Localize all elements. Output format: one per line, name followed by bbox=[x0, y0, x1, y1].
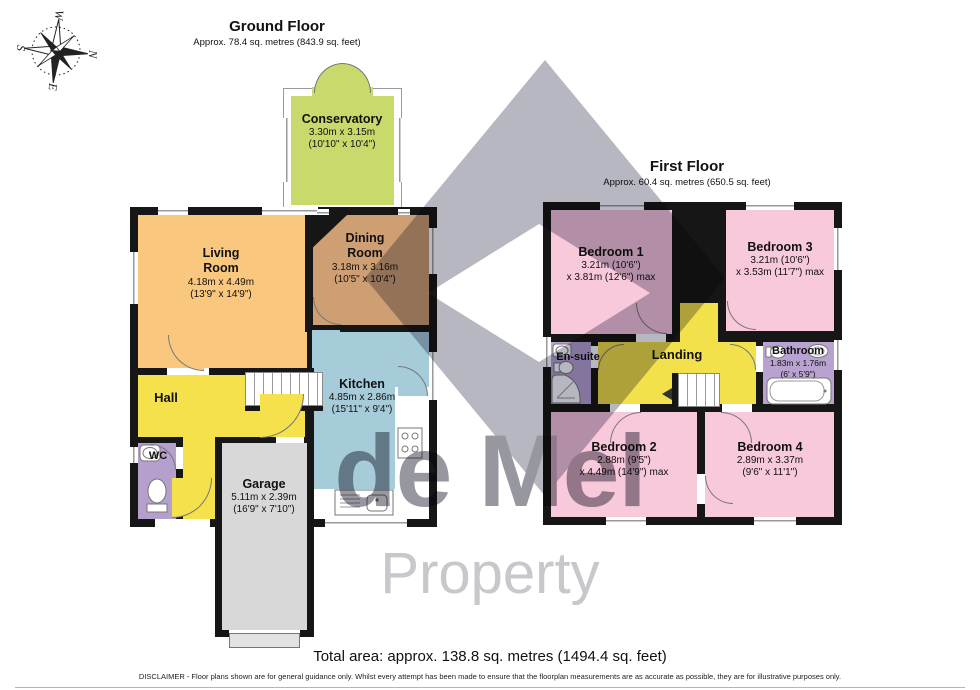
garage-dims-ft: (16'9" x 7'10") bbox=[204, 504, 324, 516]
bed4-inner-door-opening bbox=[697, 474, 705, 504]
window-kitchen-right bbox=[429, 352, 437, 400]
label-bedroom4: Bedroom 4 2.89m x 3.37m (9'6" x 11'1") bbox=[710, 440, 830, 480]
bedroom4-dims1: 2.89m x 3.37m bbox=[710, 455, 830, 467]
bedroom1-door-opening bbox=[636, 334, 666, 342]
label-dining: Dining Room 3.18m x 3.16m (10'5" x 10'4"… bbox=[305, 231, 425, 286]
bedroom2-dims2: x 4.49m (14'9") max bbox=[564, 467, 684, 479]
compass-w: W bbox=[52, 10, 67, 22]
kitchen-dims-ft: (15'11" x 9'4") bbox=[302, 404, 422, 416]
conservatory-dims-ft: (10'10" x 10'4") bbox=[282, 139, 402, 151]
bedroom4-door-opening bbox=[722, 404, 752, 412]
dining-name: Dining Room bbox=[305, 231, 425, 262]
window-dining-top-1 bbox=[317, 209, 329, 215]
watermark-property-text: Property bbox=[330, 545, 650, 603]
garage-door bbox=[229, 633, 300, 648]
disclaimer-text: DISCLAIMER - Floor plans shown are for g… bbox=[0, 672, 980, 681]
landing-name: Landing bbox=[617, 347, 737, 363]
stairs-arrow bbox=[662, 388, 672, 400]
label-ensuite: En-suite bbox=[546, 351, 610, 364]
conservatory-dims-m: 3.30m x 3.15m bbox=[282, 127, 402, 139]
wc-toilet-icon bbox=[145, 478, 169, 516]
wc-name: WC bbox=[140, 450, 176, 463]
ground-floor-subtitle: Approx. 78.4 sq. metres (843.9 sq. feet) bbox=[177, 37, 377, 48]
garage-dims-m: 5.11m x 2.39m bbox=[204, 492, 324, 504]
compass-e: E bbox=[46, 82, 61, 92]
floorplan-canvas: N E S W Ground Floor Approx. 78.4 sq. me… bbox=[0, 0, 980, 690]
window-bed4-bottom bbox=[754, 517, 796, 525]
label-bedroom3: Bedroom 3 3.21m (10'6") x 3.53m (11'7") … bbox=[718, 240, 842, 280]
total-area-text: Total area: approx. 138.8 sq. metres (14… bbox=[0, 648, 980, 665]
dining-dims-ft: (10'5" x 10'4") bbox=[305, 274, 425, 286]
window-living-top-1 bbox=[158, 207, 188, 215]
conservatory-double-door-left bbox=[314, 63, 343, 93]
bathroom-dims1: 1.83m x 1.76m bbox=[748, 358, 848, 368]
bathroom-dims2: (6' x 5'9") bbox=[748, 369, 848, 379]
label-bedroom1: Bedroom 1 3.21m (10'6") x 3.81m (12'6") … bbox=[551, 245, 671, 285]
bedroom1-dims2: x 3.81m (12'6") max bbox=[551, 272, 671, 284]
living-dims-ft: (13'9" x 14'9") bbox=[161, 289, 281, 301]
window-dining-right bbox=[429, 228, 437, 274]
kitchen-dims-m: 4.85m x 2.86m bbox=[302, 392, 422, 404]
ensuite-shower-icon bbox=[551, 374, 583, 404]
ground-floor-title-text: Ground Floor bbox=[177, 18, 377, 35]
window-living-top-2 bbox=[262, 207, 318, 215]
bedroom1-name: Bedroom 1 bbox=[551, 245, 671, 260]
window-living-left bbox=[130, 252, 138, 304]
window-dining-top-2 bbox=[398, 209, 410, 215]
label-kitchen: Kitchen 4.85m x 2.86m (15'11" x 9'4") bbox=[302, 377, 422, 417]
compass-n: N bbox=[85, 49, 97, 60]
hall-name: Hall bbox=[136, 390, 196, 406]
label-hall: Hall bbox=[136, 390, 196, 406]
bedroom3-dims2: x 3.53m (11'7") max bbox=[718, 267, 842, 279]
kitchen-name: Kitchen bbox=[302, 377, 422, 392]
first-floor-title: First Floor Approx. 60.4 sq. metres (650… bbox=[587, 158, 787, 188]
bedroom2-door-opening bbox=[610, 404, 640, 412]
wall-dining-kitchen bbox=[340, 325, 437, 332]
window-wc-left bbox=[130, 447, 138, 463]
window-kitchen-bottom bbox=[325, 519, 407, 527]
ground-floor-title: Ground Floor Approx. 78.4 sq. metres (84… bbox=[177, 18, 377, 48]
living-dims-m: 4.18m x 4.49m bbox=[161, 277, 281, 289]
kitchen-sink-icon bbox=[334, 489, 394, 516]
compass-s: S bbox=[15, 44, 28, 51]
wc-door-opening bbox=[176, 447, 183, 469]
label-bedroom2: Bedroom 2 2.88m (9'5") x 4.49m (14'9") m… bbox=[564, 440, 684, 480]
dining-dims-m: 3.18m x 3.16m bbox=[305, 262, 425, 274]
bathtub-icon bbox=[766, 377, 832, 405]
label-living: Living Room 4.18m x 4.49m (13'9" x 14'9"… bbox=[161, 246, 281, 301]
front-door-opening bbox=[155, 519, 210, 527]
bedroom2-name: Bedroom 2 bbox=[564, 440, 684, 455]
conservatory-name: Conservatory bbox=[282, 112, 402, 127]
label-bathroom: Bathroom 1.83m x 1.76m (6' x 5'9") bbox=[748, 345, 848, 379]
window-bed1-top bbox=[600, 202, 644, 210]
footer-divider bbox=[15, 687, 965, 688]
label-garage: Garage 5.11m x 2.39m (16'9" x 7'10") bbox=[204, 477, 324, 517]
bedroom4-dims2: (9'6" x 11'1") bbox=[710, 467, 830, 479]
label-conservatory: Conservatory 3.30m x 3.15m (10'10" x 10'… bbox=[282, 112, 402, 152]
label-wc: WC bbox=[140, 450, 176, 463]
wall-bed3-bottom bbox=[754, 331, 834, 340]
bedroom2-dims1: 2.88m (9'5") bbox=[564, 455, 684, 467]
compass-icon: N E S W bbox=[15, 10, 97, 92]
garage-door-opening-inner bbox=[276, 437, 304, 443]
bedroom3-dims1: 3.21m (10'6") bbox=[718, 255, 842, 267]
bedroom3-name: Bedroom 3 bbox=[718, 240, 842, 255]
first-floor-title-text: First Floor bbox=[587, 158, 787, 175]
bedroom4-name: Bedroom 4 bbox=[710, 440, 830, 455]
garage-name: Garage bbox=[204, 477, 324, 492]
room-garage bbox=[222, 443, 307, 633]
first-floor-subtitle: Approx. 60.4 sq. metres (650.5 sq. feet) bbox=[587, 177, 787, 188]
label-landing: Landing bbox=[617, 347, 737, 363]
window-bed2-bottom bbox=[606, 517, 646, 525]
ensuite-name: En-suite bbox=[546, 351, 610, 364]
living-name: Living Room bbox=[161, 246, 281, 277]
bathroom-name: Bathroom bbox=[748, 345, 848, 358]
window-bed3-top bbox=[746, 202, 794, 210]
first-stairs bbox=[678, 373, 720, 407]
conservatory-double-door-right bbox=[342, 63, 371, 93]
bedroom1-dims1: 3.21m (10'6") bbox=[551, 260, 671, 272]
wall-bed1-right bbox=[672, 210, 680, 342]
landing-nook bbox=[680, 303, 718, 342]
stove-icon bbox=[397, 427, 423, 459]
